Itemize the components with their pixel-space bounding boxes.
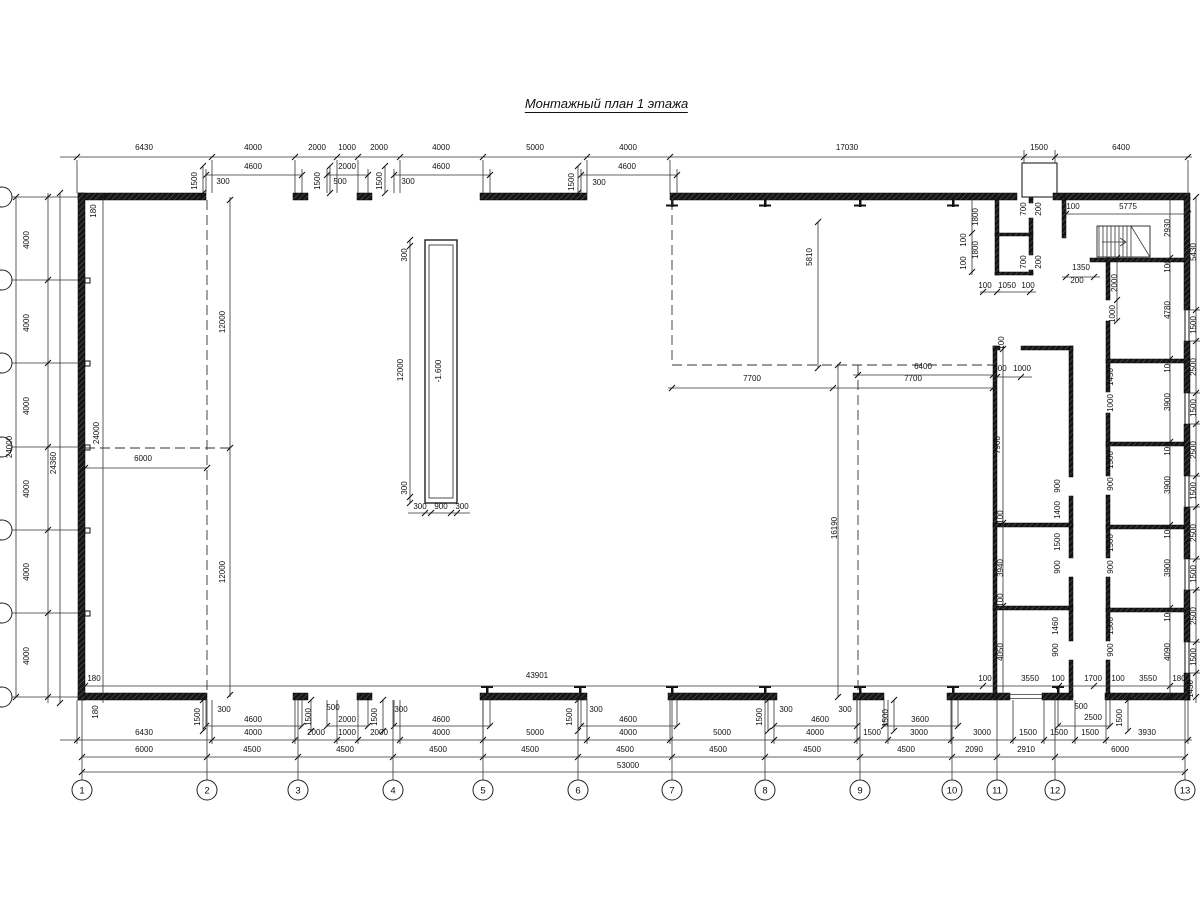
dimension-text: 24000 — [5, 435, 14, 458]
dimension-text: 300 — [394, 705, 408, 714]
dimension-text: 4600 — [432, 162, 450, 171]
dimension-text: 1500 — [881, 709, 890, 727]
column-mark — [85, 528, 90, 533]
axis-number: 1 — [79, 786, 84, 797]
dimension-text: 900 — [1053, 479, 1062, 493]
dimension-text: 200 — [1070, 276, 1084, 285]
dimension-text: 100 — [996, 593, 1005, 607]
wall-segment — [668, 693, 777, 700]
dimension-text: 2930 — [1163, 219, 1172, 237]
dimension-text: 2090 — [965, 745, 983, 754]
dimension-text: 1500 — [193, 708, 202, 726]
pit-outline — [1097, 226, 1150, 257]
dimension-text: 900 — [434, 502, 448, 511]
dimension-text: 12000 — [218, 310, 227, 333]
dimension-text: 100 — [1051, 674, 1065, 683]
dimension-text: 2500 — [1189, 441, 1198, 459]
wall-segment — [480, 693, 587, 700]
dimension-text: 4000 — [432, 143, 450, 152]
column-mark — [85, 611, 90, 616]
dimension-text: 500 — [326, 703, 340, 712]
dimension-text: 1500 — [1019, 728, 1037, 737]
wall-segment — [993, 523, 1073, 527]
dimension-text: 100 — [1163, 259, 1172, 273]
wall-segment — [1042, 693, 1073, 700]
dimension-text: 100 — [1066, 202, 1080, 211]
dimension-text: 6000 — [134, 454, 152, 463]
floor-plan-svg: 1234567891011121364304000200010002000400… — [0, 0, 1200, 900]
dimension-text: 1500 — [313, 172, 322, 190]
dimension-text: 4500 — [429, 745, 447, 754]
dimension-text: 7900 — [993, 436, 1002, 454]
dimension-text: 100 — [978, 281, 992, 290]
dimension-text: 1500 — [1189, 565, 1198, 583]
dimension-text: 1500 — [370, 708, 379, 726]
axis-number: 10 — [947, 786, 958, 797]
dimension-text: 900 — [1051, 643, 1060, 657]
dimension-text: 300 — [216, 177, 230, 186]
axis-number: 8 — [762, 786, 767, 797]
dimension-text: 4000 — [244, 728, 262, 737]
wall-segment — [1106, 359, 1184, 363]
axis-number: 7 — [669, 786, 674, 797]
dimension-text: 1500 — [565, 708, 574, 726]
dimension-text: 2500 — [1084, 713, 1102, 722]
dimension-text: 1800 — [971, 241, 980, 259]
dimension-text: 1500 — [1050, 728, 1068, 737]
dimension-text: 1500 — [1030, 143, 1048, 152]
dimension-text: 300 — [779, 705, 793, 714]
dimension-text: 2000 — [308, 143, 326, 152]
wall-segment — [1029, 218, 1033, 255]
dimension-text: 700 — [1019, 255, 1028, 269]
axis-number: 3 — [295, 786, 300, 797]
dimension-text: 4500 — [803, 745, 821, 754]
wall-segment — [78, 693, 207, 700]
axis-number: 4 — [390, 786, 395, 797]
dimension-text: 6400 — [914, 362, 932, 371]
dimension-text: 1500 — [375, 172, 384, 190]
dimension-text: 180 — [87, 674, 101, 683]
dimension-text: 100 — [959, 256, 968, 270]
dimension-text: 3000 — [973, 728, 991, 737]
dimension-text: 6400 — [1112, 143, 1130, 152]
dimension-text: 4000 — [22, 231, 31, 249]
axis-bubble — [0, 520, 12, 540]
wall-segment — [1069, 660, 1073, 697]
dimension-text: 4500 — [521, 745, 539, 754]
axis-bubble — [0, 603, 12, 623]
dimension-text: 4600 — [432, 715, 450, 724]
dimension-text: 100 — [1163, 442, 1172, 456]
dimension-text: 4500 — [897, 745, 915, 754]
wall-segment — [293, 193, 308, 200]
wall-segment — [1053, 193, 1190, 200]
dimension-text: 200 — [1034, 255, 1043, 269]
wall-segment — [1106, 660, 1110, 697]
dimension-text: 900 — [1106, 477, 1115, 491]
dimension-text: 1500 — [1106, 451, 1115, 469]
dimension-text: 300 — [455, 502, 469, 511]
dimension-text: 500 — [1074, 702, 1088, 711]
dimension-text: 900 — [1106, 560, 1115, 574]
drawing-canvas: Монтажный план 1 этажа 12345678910111213… — [0, 0, 1200, 900]
dimension-text: 24000 — [92, 421, 101, 444]
dimension-text: 1000 — [1106, 394, 1115, 412]
dimension-text: 1430 — [1186, 680, 1195, 698]
dimension-text: 200 — [1034, 202, 1043, 216]
dimension-text: 900 — [1053, 560, 1062, 574]
dimension-text: 700 — [1019, 202, 1028, 216]
dimension-text: 100 — [996, 510, 1005, 524]
dimension-text: 3940 — [996, 559, 1005, 577]
dimension-text: 5810 — [805, 248, 814, 266]
dimension-text: 2000 — [307, 728, 325, 737]
dimension-text: 1500 — [567, 173, 576, 191]
dimension-text: 4780 — [1163, 301, 1172, 319]
column-mark — [85, 445, 90, 450]
wall-segment — [1029, 197, 1033, 203]
column-mark — [85, 361, 90, 366]
wall-segment — [1106, 442, 1184, 446]
dimension-text: 1500 — [1106, 534, 1115, 552]
dimension-text: 5000 — [526, 728, 544, 737]
dimension-text: 6000 — [135, 745, 153, 754]
wall-segment — [853, 693, 884, 700]
dimension-text: 5000 — [713, 728, 731, 737]
column-tee-icon — [947, 205, 959, 207]
dimension-text: 3930 — [1138, 728, 1156, 737]
dimension-text: 3550 — [1139, 674, 1157, 683]
axis-number: 12 — [1050, 786, 1061, 797]
dimension-text: 1700 — [1084, 674, 1102, 683]
dimension-text: 1460 — [1051, 617, 1060, 635]
dimension-text: 3900 — [1163, 476, 1172, 494]
dimension-text: 3900 — [1163, 559, 1172, 577]
dimension-text: 4500 — [709, 745, 727, 754]
dimension-text: 1500 — [304, 708, 313, 726]
dimension-text: 180 — [1172, 674, 1186, 683]
column-tee-icon — [854, 205, 866, 207]
axis-number: 2 — [204, 786, 209, 797]
dimension-text: 300 — [589, 705, 603, 714]
dimension-text: 4600 — [618, 162, 636, 171]
dimension-text: 1000 — [1108, 305, 1117, 323]
dimension-text: 6430 — [135, 143, 153, 152]
dimension-text: 1500 — [755, 708, 764, 726]
wall-segment — [78, 193, 206, 200]
axis-number: 13 — [1180, 786, 1191, 797]
dimension-text: 4600 — [619, 715, 637, 724]
dimension-text: 1400 — [1053, 501, 1062, 519]
dimension-text: 1000 — [338, 143, 356, 152]
dimension-text: 2000 — [370, 728, 388, 737]
dimension-text: 4500 — [336, 745, 354, 754]
dimension-text: 1500 — [1106, 617, 1115, 635]
dimension-text: 1000 — [338, 728, 356, 737]
dimension-text: 180 — [89, 204, 98, 218]
axis-bubble — [0, 353, 12, 373]
dimension-text: 4500 — [616, 745, 634, 754]
dimension-text: 300 — [592, 178, 606, 187]
wall-segment — [1105, 693, 1190, 700]
dimension-text: 4000 — [22, 647, 31, 665]
dimension-text: 1500 — [1189, 648, 1198, 666]
dimension-text: 100 — [1163, 359, 1172, 373]
dimension-text: 24360 — [49, 451, 58, 474]
dimension-text: 1500 — [1115, 709, 1124, 727]
dimension-text: 3600 — [911, 715, 929, 724]
dimension-text: 2500 — [1189, 358, 1198, 376]
dimension-text: 4000 — [22, 563, 31, 581]
wall-segment — [995, 233, 1033, 236]
dimension-text: 6430 — [135, 728, 153, 737]
dimension-text: 12000 — [218, 560, 227, 583]
wall-segment — [480, 193, 587, 200]
dimension-text: 1500 — [1053, 533, 1062, 551]
dimension-text: 500 — [333, 177, 347, 186]
wall-segment — [78, 193, 85, 700]
dimension-text: 4000 — [619, 143, 637, 152]
dimension-text: 2000 — [338, 715, 356, 724]
dimension-text: 300 — [413, 502, 427, 511]
wall-segment — [670, 193, 1017, 200]
dimension-text: 1500 — [1081, 728, 1099, 737]
wall-segment — [293, 693, 308, 700]
axis-bubble — [0, 270, 12, 290]
pit-outline — [1022, 163, 1057, 197]
wall-segment — [1106, 525, 1184, 529]
dimension-text: 2000 — [1110, 274, 1119, 292]
dimension-text: 300 — [401, 177, 415, 186]
dimension-text: -1.600 — [434, 359, 443, 382]
dimension-text: 6000 — [1111, 745, 1129, 754]
dimension-text: 2000 — [338, 162, 356, 171]
dimension-text: 4600 — [244, 162, 262, 171]
dimension-text: 4000 — [22, 480, 31, 498]
dimension-text: 1000 — [1013, 364, 1031, 373]
dimension-text: 1050 — [998, 281, 1016, 290]
dimension-text: 100 — [997, 336, 1006, 350]
axis-bubble — [0, 687, 12, 707]
wall-segment — [995, 272, 1033, 275]
dimension-text: 16190 — [830, 516, 839, 539]
dimension-text: 17030 — [836, 143, 859, 152]
dimension-text: 1500 — [863, 728, 881, 737]
dimension-text: 900 — [1106, 643, 1115, 657]
dimension-text: 12000 — [396, 358, 405, 381]
dimension-text: 4050 — [996, 643, 1005, 661]
dimension-text: 4090 — [1163, 643, 1172, 661]
dimension-text: 1500 — [1189, 316, 1198, 334]
wall-segment — [357, 693, 372, 700]
axis-number: 9 — [857, 786, 862, 797]
dimension-text: 4000 — [22, 314, 31, 332]
dimension-text: 4000 — [806, 728, 824, 737]
dimension-text: 1500 — [190, 172, 199, 190]
dimension-text: 4500 — [243, 745, 261, 754]
wall-segment — [1069, 346, 1073, 477]
dimension-text: 1500 — [1189, 482, 1198, 500]
dimension-text: 4000 — [22, 397, 31, 415]
dimension-text: 1500 — [1189, 399, 1198, 417]
dimension-text: 100 — [1163, 608, 1172, 622]
dimension-text: 1450 — [1106, 368, 1115, 386]
dimension-text: 5430 — [1189, 243, 1198, 261]
dimension-text: 100 — [1163, 525, 1172, 539]
dimension-text: 4000 — [432, 728, 450, 737]
dimension-text: 100 — [978, 674, 992, 683]
column-mark — [85, 278, 90, 283]
dimension-text: 4600 — [244, 715, 262, 724]
dimension-text: 300 — [217, 705, 231, 714]
dimension-text: 2500 — [1189, 607, 1198, 625]
dimension-text: 300 — [838, 705, 852, 714]
dimension-text: 53000 — [617, 761, 640, 770]
dimension-text: 900 — [993, 364, 1007, 373]
axis-number: 11 — [992, 786, 1002, 797]
axis-bubble — [0, 187, 12, 207]
dimension-text: 2000 — [370, 143, 388, 152]
dimension-text: 4000 — [244, 143, 262, 152]
dimension-text: 43901 — [526, 671, 549, 680]
wall-segment — [1021, 346, 1073, 350]
axis-number: 5 — [480, 786, 485, 797]
drawing-line — [1131, 226, 1150, 257]
dimension-text: 100 — [1111, 674, 1125, 683]
dimension-text: 1800 — [971, 208, 980, 226]
wall-segment — [993, 606, 1073, 610]
wall-segment — [357, 193, 372, 200]
dimension-text: 7700 — [743, 374, 761, 383]
dimension-text: 4600 — [811, 715, 829, 724]
dimension-text: 1350 — [1072, 263, 1090, 272]
dimension-text: 3550 — [1021, 674, 1039, 683]
dimension-text: 5000 — [526, 143, 544, 152]
dimension-text: 7700 — [904, 374, 922, 383]
dimension-text: 2910 — [1017, 745, 1035, 754]
dimension-text: 5775 — [1119, 202, 1137, 211]
wall-segment — [1106, 608, 1184, 612]
dimension-text: 3000 — [910, 728, 928, 737]
dimension-text: 100 — [959, 233, 968, 247]
dimension-text: 4000 — [619, 728, 637, 737]
dimension-text: 100 — [1021, 281, 1035, 290]
axis-number: 6 — [575, 786, 580, 797]
column-tee-icon — [759, 205, 771, 207]
dimension-text: 3900 — [1163, 393, 1172, 411]
dimension-text: 300 — [400, 248, 409, 262]
dimension-text: 180 — [91, 705, 100, 719]
dimension-text: 300 — [400, 481, 409, 495]
dimension-text: 2500 — [1189, 524, 1198, 542]
